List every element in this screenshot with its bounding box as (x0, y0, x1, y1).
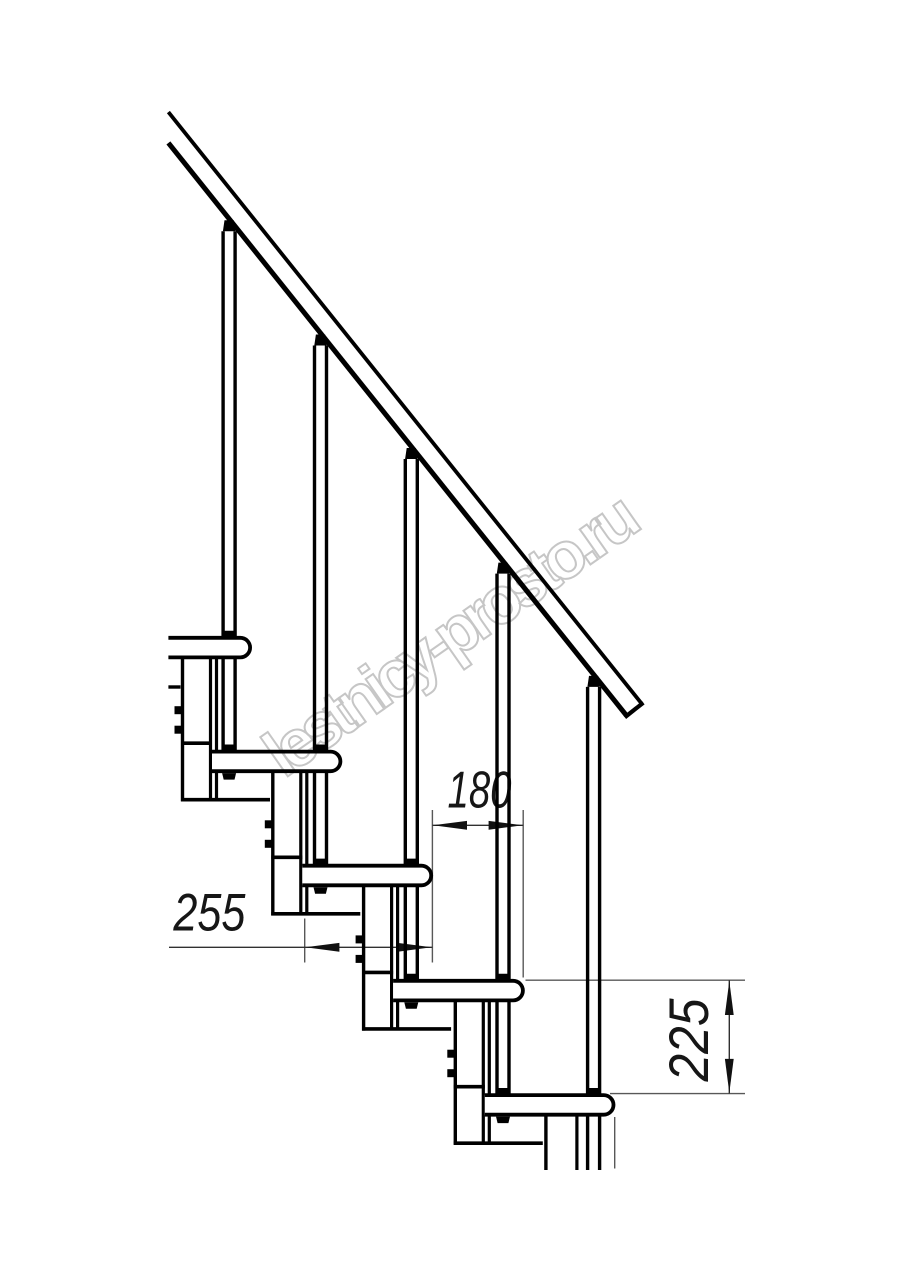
svg-text:255: 255 (173, 884, 246, 943)
svg-text:180: 180 (448, 762, 512, 820)
svg-text:225: 225 (657, 998, 720, 1083)
